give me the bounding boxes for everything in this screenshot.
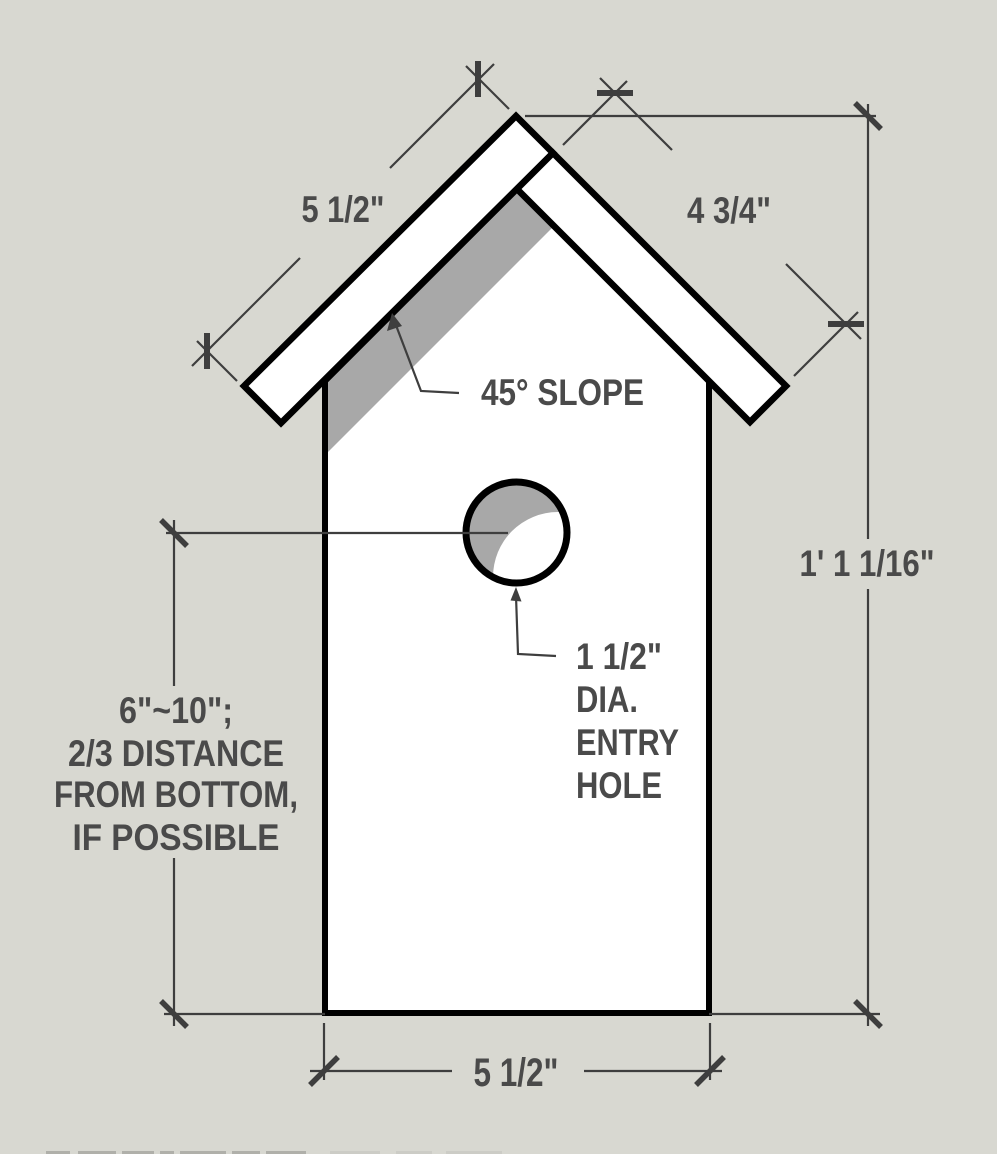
svg-text:1' 1 1/16": 1' 1 1/16" [800,543,935,584]
svg-text:IF POSSIBLE: IF POSSIBLE [73,817,280,858]
svg-text:DIA.: DIA. [576,679,638,720]
svg-text:6"~10";: 6"~10"; [119,690,233,731]
svg-text:ENTRY: ENTRY [576,722,679,763]
svg-text:45° SLOPE: 45° SLOPE [481,372,644,413]
svg-text:HOLE: HOLE [576,765,662,806]
svg-text:FROM BOTTOM,: FROM BOTTOM, [54,774,298,815]
svg-text:2/3 DISTANCE: 2/3 DISTANCE [68,733,284,774]
svg-text:4 3/4": 4 3/4" [687,190,771,231]
svg-text:1 1/2": 1 1/2" [576,636,662,677]
svg-text:5 1/2": 5 1/2" [474,1051,559,1095]
svg-text:5 1/2": 5 1/2" [302,189,385,230]
